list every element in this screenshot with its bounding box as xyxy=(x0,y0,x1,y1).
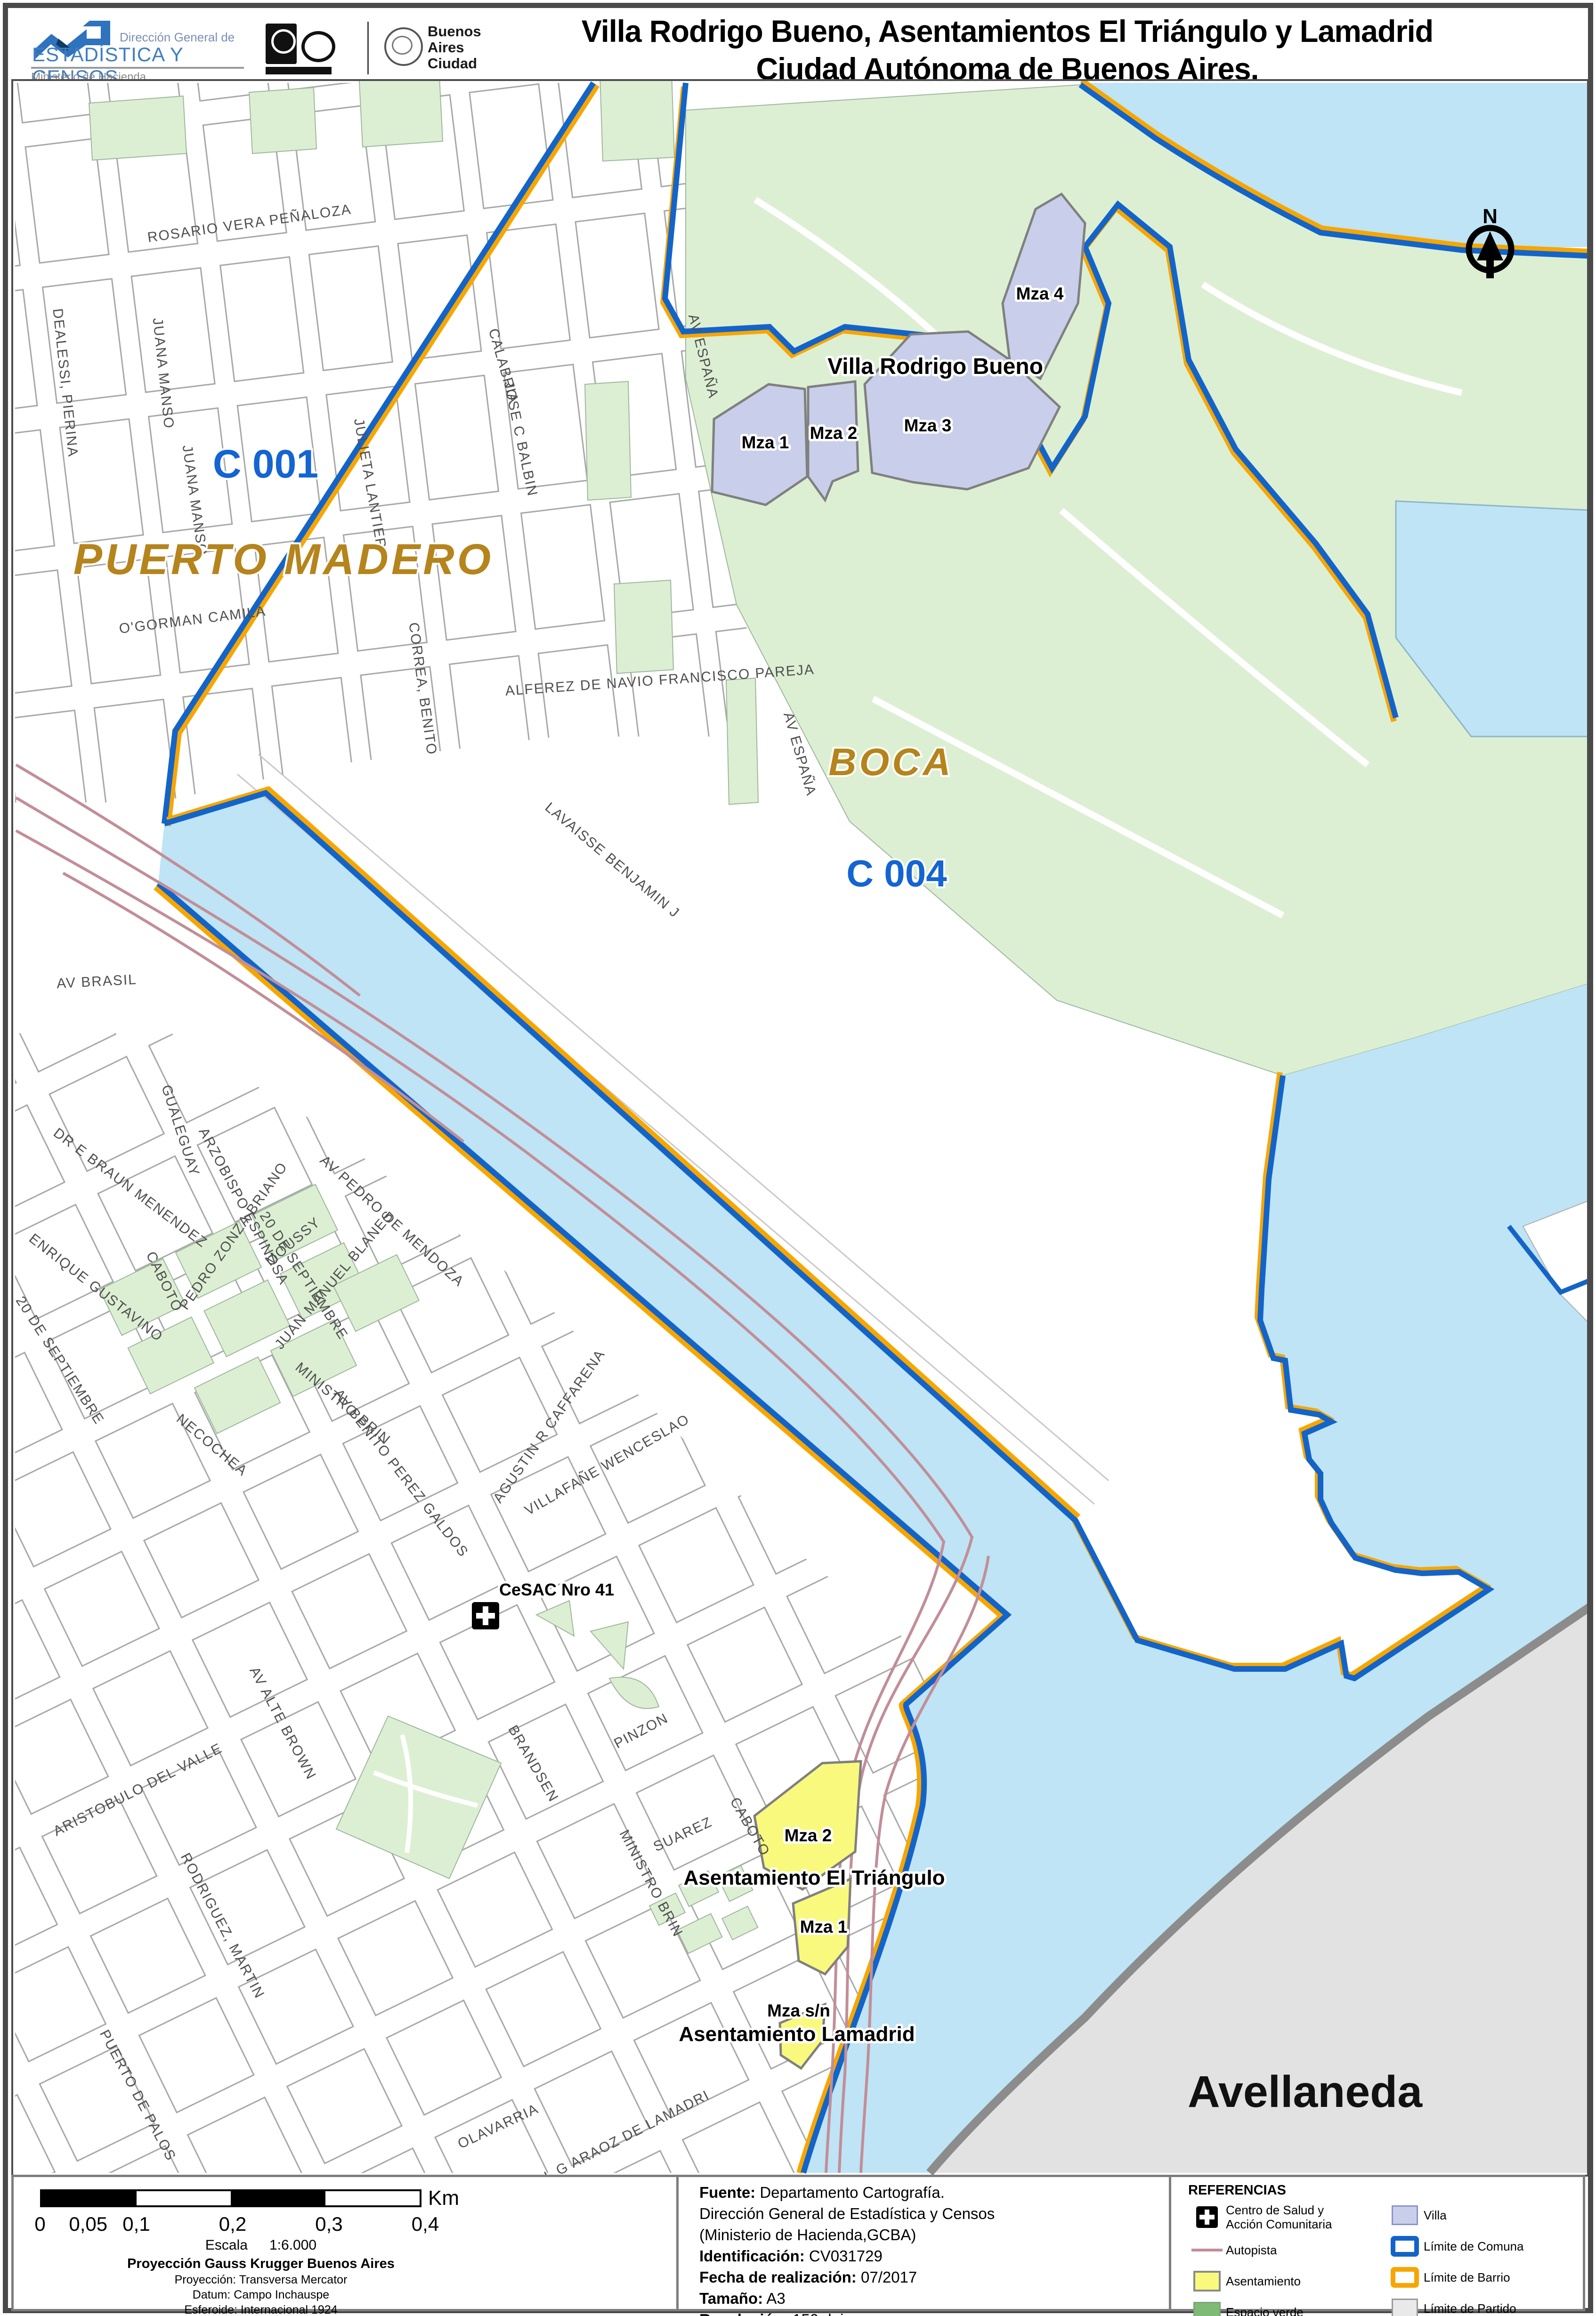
limite-partido-icon xyxy=(1392,2299,1418,2316)
scale-tick: 0 xyxy=(34,2213,45,2235)
tamano-line: Tamaño: A3 xyxy=(699,2290,1169,2308)
north-label: N xyxy=(1483,205,1498,228)
esferoide-line: Esferoide: Internacional 1924 xyxy=(14,2303,508,2316)
espacio-verde-swatch-icon xyxy=(1193,2302,1221,2316)
legend-item-cesac: Centro de Salud yAcción Comunitaria xyxy=(1188,2203,1386,2231)
logo-line1: Dirección General de xyxy=(120,30,235,45)
header-separator xyxy=(367,22,369,74)
scale-tick: 0,1 xyxy=(122,2213,150,2235)
proyeccion-bold: Proyección Gauss Krugger Buenos Aires xyxy=(14,2256,508,2272)
legend-item-autopista: Autopista xyxy=(1188,2238,1386,2262)
legend-item-comuna: Límite de Comuna xyxy=(1386,2234,1523,2259)
legend-label: Límite de Partido xyxy=(1424,2301,1516,2316)
resolucion-line: Resolución: 150 dpi xyxy=(699,2311,1169,2316)
iso-caption-bar xyxy=(266,67,332,74)
proyeccion-line: Proyección: Transversa Mercator xyxy=(14,2273,508,2287)
legend-item-partido: Límite de Partido xyxy=(1386,2296,1523,2316)
scale-tick: 0,05 xyxy=(69,2213,107,2235)
villa-mza3-label: Mza 3 xyxy=(904,416,952,435)
autopista-line-icon xyxy=(1191,2249,1223,2251)
logo-divider xyxy=(31,67,244,69)
legend-col-2: Villa Límite de Comuna Límite de Barrio … xyxy=(1386,2203,1523,2316)
legend-item-verde: Espacio verde xyxy=(1188,2300,1386,2316)
datum-line: Datum: Campo Inchauspe xyxy=(14,2288,508,2302)
barrio-puerto-madero-label: PUERTO MADERO xyxy=(73,535,494,583)
legend-label: Límite de Comuna xyxy=(1424,2239,1523,2253)
legend-title: REFERENCIAS xyxy=(1188,2183,1583,2198)
scale-tick: 0,3 xyxy=(315,2213,342,2235)
map-canvas: ROSARIO VERA PEÑALOZA DEALESSI, PIERINA … xyxy=(11,79,1589,2177)
scale-bar xyxy=(40,2189,421,2207)
ministerio-line: (Ministerio de Hacienda,GCBA) xyxy=(699,2226,1169,2244)
barrio-boca-label: BOCA xyxy=(828,741,953,784)
legend-item-villa: Villa xyxy=(1386,2203,1523,2227)
cesac-icon xyxy=(472,1602,499,1629)
map-svg: ROSARIO VERA PEÑALOZA DEALESSI, PIERINA … xyxy=(13,81,1587,2175)
scale-tick: 0,2 xyxy=(219,2213,246,2235)
legend-item-asentamiento: Asentamiento xyxy=(1188,2269,1386,2293)
lamadrid-title-label: Asentamiento Lamadrid xyxy=(679,2023,915,2046)
triangulo-mza2-label: Mza 2 xyxy=(785,1826,832,1845)
triangulo-mza1-label: Mza 1 xyxy=(800,1917,848,1936)
legend-panel: REFERENCIAS Centro de Salud yAcción Comu… xyxy=(1171,2177,1583,2309)
direccion-line: Dirección General de Estadística y Censo… xyxy=(699,2205,1169,2223)
asentamiento-swatch-icon xyxy=(1193,2271,1221,2292)
villa-title-label: Villa Rodrigo Bueno xyxy=(827,354,1043,379)
villa-mza4-label: Mza 4 xyxy=(1016,284,1064,303)
triangulo-title-label: Asentamiento El Triángulo xyxy=(684,1866,945,1889)
fuente-line: Fuente: Departamento Cartografía. xyxy=(699,2184,1169,2202)
identificacion-line: Identificación: CV031729 xyxy=(699,2247,1169,2265)
iso-oval-icon xyxy=(301,31,335,62)
villa-mza1-label: Mza 1 xyxy=(742,433,789,452)
scale-panel: Km 0 0,05 0,1 0,2 0,3 0,4 Escala1:6.000 … xyxy=(14,2177,679,2309)
legend-col-1: Centro de Salud yAcción Comunitaria Auto… xyxy=(1188,2203,1386,2316)
iso-badge-icon xyxy=(266,24,297,64)
footer: Km 0 0,05 0,1 0,2 0,3 0,4 Escala1:6.000 … xyxy=(11,2175,1585,2311)
limite-barrio-icon xyxy=(1391,2267,1419,2288)
scale-ticks: 0 0,05 0,1 0,2 0,3 0,4 xyxy=(40,2213,425,2232)
fecha-line: Fecha de realización: 07/2017 xyxy=(699,2268,1169,2286)
title-line-1: Villa Rodrigo Bueno, Asentamientos El Tr… xyxy=(465,13,1550,49)
puerto-madero-street-grid xyxy=(15,83,755,802)
partido-avellaneda-label: Avellaneda xyxy=(1188,2067,1423,2117)
map-title: Villa Rodrigo Bueno, Asentamientos El Tr… xyxy=(454,9,1561,78)
lamadrid-mza-label: Mza s/n xyxy=(767,2001,830,2020)
health-cross-icon xyxy=(1196,2206,1218,2228)
ba-emblem-icon xyxy=(384,27,423,66)
legend-label: Espacio verde xyxy=(1226,2305,1304,2316)
header: Dirección General de ESTADÍSTICA Y CENSO… xyxy=(11,9,1585,78)
escala-line: Escala1:6.000 xyxy=(14,2237,508,2253)
villa-swatch-icon xyxy=(1392,2205,1418,2225)
villa-mza2-label: Mza 2 xyxy=(810,423,858,443)
legend-label: Límite de Barrio xyxy=(1424,2270,1510,2284)
limite-comuna-icon xyxy=(1391,2236,1419,2257)
source-panel: Fuente: Departamento Cartografía. Direcc… xyxy=(679,2177,1171,2309)
cesac-label: CeSAC Nro 41 xyxy=(499,1580,614,1599)
comuna-4-label: C 004 xyxy=(846,852,947,894)
scale-tick: 0,4 xyxy=(412,2213,439,2235)
legend-label: Villa xyxy=(1424,2208,1447,2222)
comuna-1-label: C 001 xyxy=(213,442,318,486)
iso-certification-badges xyxy=(266,24,336,75)
scale-unit: Km xyxy=(428,2186,459,2210)
legend-label: Autopista xyxy=(1226,2243,1277,2257)
map-sheet: Dirección General de ESTADÍSTICA Y CENSO… xyxy=(0,0,1596,2316)
legend-label: Centro de Salud yAcción Comunitaria xyxy=(1226,2203,1332,2231)
legend-label: Asentamiento xyxy=(1226,2274,1301,2288)
legend-item-barrio: Límite de Barrio xyxy=(1386,2265,1523,2290)
estadistica-censos-logo: Dirección General de ESTADÍSTICA Y CENSO… xyxy=(30,21,256,77)
